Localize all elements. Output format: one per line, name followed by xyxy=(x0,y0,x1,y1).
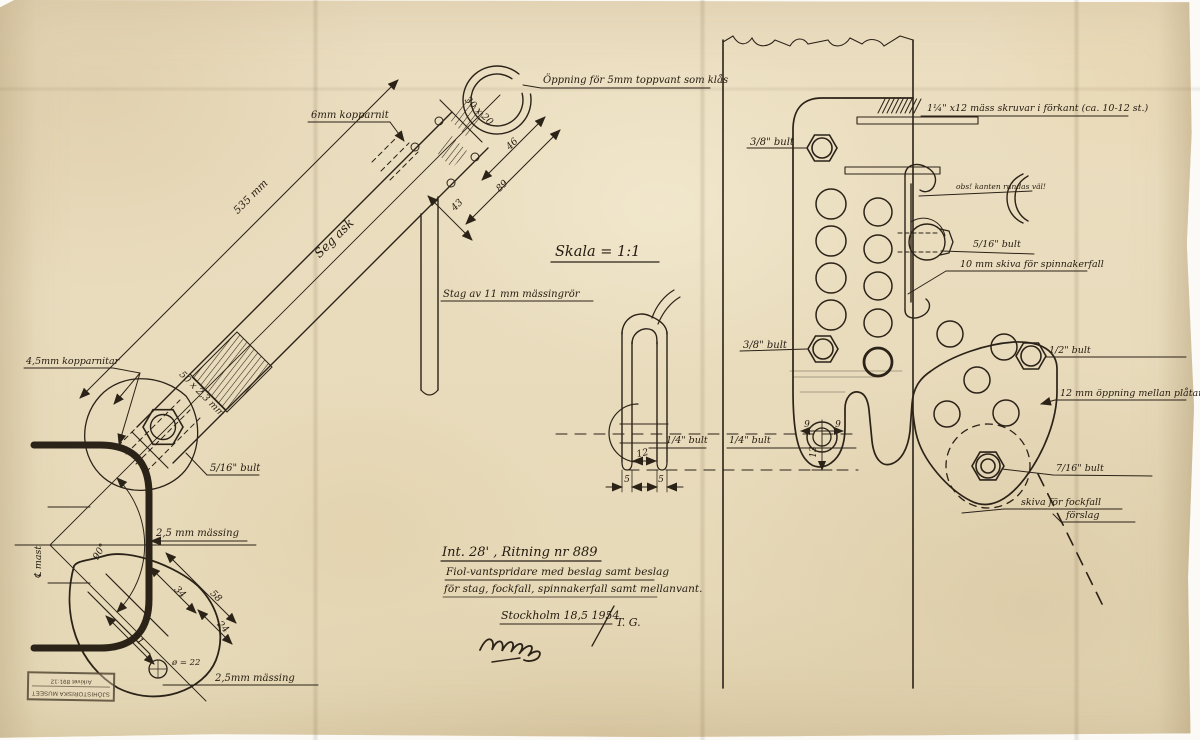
title-initials: T. G. xyxy=(616,616,641,629)
label-bolt516-right: 5/16" bult xyxy=(973,239,1021,250)
shackle-front-view xyxy=(556,290,858,492)
arrow-gap12 xyxy=(1041,400,1055,404)
leader-rivets45-b xyxy=(119,373,140,444)
dim-51: 51 xyxy=(130,631,146,647)
shackle-dome-outer xyxy=(622,314,667,334)
stamp-archive-number: Arkivet 891:12 xyxy=(32,675,110,685)
forestay-dashed-line xyxy=(1038,474,1104,608)
screw-batten-1 xyxy=(857,117,978,124)
dim-9a: 9 xyxy=(804,420,810,430)
dim-24: 24 xyxy=(214,618,231,635)
hidden-joint-dashes xyxy=(372,134,418,180)
spreader-tube-drawing xyxy=(15,66,531,701)
sheave-edge-arc xyxy=(609,404,638,462)
leader-rivet6 xyxy=(390,122,404,141)
screw-batten-2 xyxy=(845,167,940,174)
label-bolt716: 7/16" bult xyxy=(1056,463,1104,474)
label-bolt38-mid: 3/8" bult xyxy=(743,340,788,351)
museum-archive-stamp: SJÖHISTORISKA MUSEET Arkivet 891:12 xyxy=(27,671,115,702)
stay-tube-cap xyxy=(421,390,438,395)
leader-rivets45 xyxy=(113,368,140,373)
dim-9b: 9 xyxy=(835,420,841,430)
label-wood: Seg ask xyxy=(311,215,357,261)
drawing-canvas: Öppning för 5mm toppvant som klås 6mm ko… xyxy=(0,0,1200,740)
label-bolt38-top: 3/8" bult xyxy=(750,137,795,148)
leader-bolt516 xyxy=(941,251,1034,254)
dim-535: 535 mm xyxy=(231,177,270,216)
title-line2: Fiol-vantspridare med beslag samt beslag xyxy=(445,566,669,578)
dim-43: 43 xyxy=(448,197,465,214)
mast-side-view xyxy=(723,36,1104,688)
label-bolt14-right: 1/4" bult xyxy=(729,435,771,446)
leader-sheave10 xyxy=(908,271,1087,294)
dim-46: 46 xyxy=(503,136,520,153)
label-screws: 1¼" x12 mäss skruvar i förkant (ca. 10-1… xyxy=(927,103,1148,114)
fitting-teardrop-outline xyxy=(85,379,198,491)
dim-12: 12 xyxy=(635,447,649,460)
plate-outline xyxy=(793,98,1057,504)
hatch-patch xyxy=(436,136,468,168)
spreader-axis-centerline xyxy=(50,95,500,545)
label-rivet6: 6mm kopparnit xyxy=(311,110,390,121)
lightening-holes xyxy=(816,189,1019,427)
label-proposal: förslag xyxy=(1065,510,1099,521)
label-sheave10: 10 mm skiva för spinnakerfall xyxy=(960,259,1104,270)
title-place-date: Stockholm 18,5 1954 xyxy=(501,609,620,622)
scanned-technical-drawing: Öppning för 5mm toppvant som klås 6mm ko… xyxy=(0,0,1200,740)
dim-89: 89 xyxy=(494,178,510,194)
leader-rivets45-a xyxy=(114,373,140,404)
label-sheave-fock: skiva för fockfall xyxy=(1021,497,1101,508)
signature xyxy=(480,639,540,661)
dim-5a: 5 xyxy=(624,475,630,485)
dim-line-43 xyxy=(428,196,472,240)
stamp-museum-name: SJÖHISTORISKA MUSEET xyxy=(32,685,110,697)
title-line1: Int. 28' , Ritning nr 889 xyxy=(441,545,598,560)
proposed-sheave-dashed-circle xyxy=(946,424,1030,508)
shackle-feet xyxy=(622,462,667,470)
sleeve-rivet-dashes xyxy=(118,392,200,472)
label-bolt12: 1/2" bult xyxy=(1049,345,1091,356)
stay-tube-lines xyxy=(421,197,438,390)
label-bolt516-left: 5/16" bult xyxy=(210,463,261,474)
dim-13: 13 xyxy=(809,446,819,458)
dim-hole22: ø = 22 xyxy=(171,658,200,668)
label-rivets45: 4,5mm kopparnitar xyxy=(25,356,121,367)
label-brass25-lower: 2,5mm mässing xyxy=(214,673,295,684)
rivet-bump xyxy=(471,153,479,161)
label-bolt14-left: 1/4" bult xyxy=(666,435,708,446)
label-mast-centerline: ℄ mast xyxy=(33,546,44,579)
hatch-marks xyxy=(878,99,921,113)
rivet-bump xyxy=(435,117,443,125)
break-squiggle xyxy=(723,36,913,46)
label-opening: Öppning för 5mm toppvant som klås xyxy=(543,74,728,86)
title-line3: för stag, fockfall, spinnakerfall samt m… xyxy=(443,583,702,595)
shackle-dome-inner xyxy=(632,329,657,344)
dim-34: 34 xyxy=(172,584,188,600)
dim-5b: 5 xyxy=(658,475,664,485)
label-skala: Skala = 1:1 xyxy=(555,244,640,260)
hex-nut-bore xyxy=(151,415,176,440)
label-stay: Stag av 11 mm mässingrör xyxy=(443,289,581,300)
label-brass25-upper: 2,5 mm mässing xyxy=(155,528,239,539)
label-gap12: 12 mm öppning mellan plåtarna xyxy=(1060,387,1200,399)
signature-underline xyxy=(492,658,520,662)
label-edge-note: obs! kanten rundas väl! xyxy=(956,182,1046,191)
